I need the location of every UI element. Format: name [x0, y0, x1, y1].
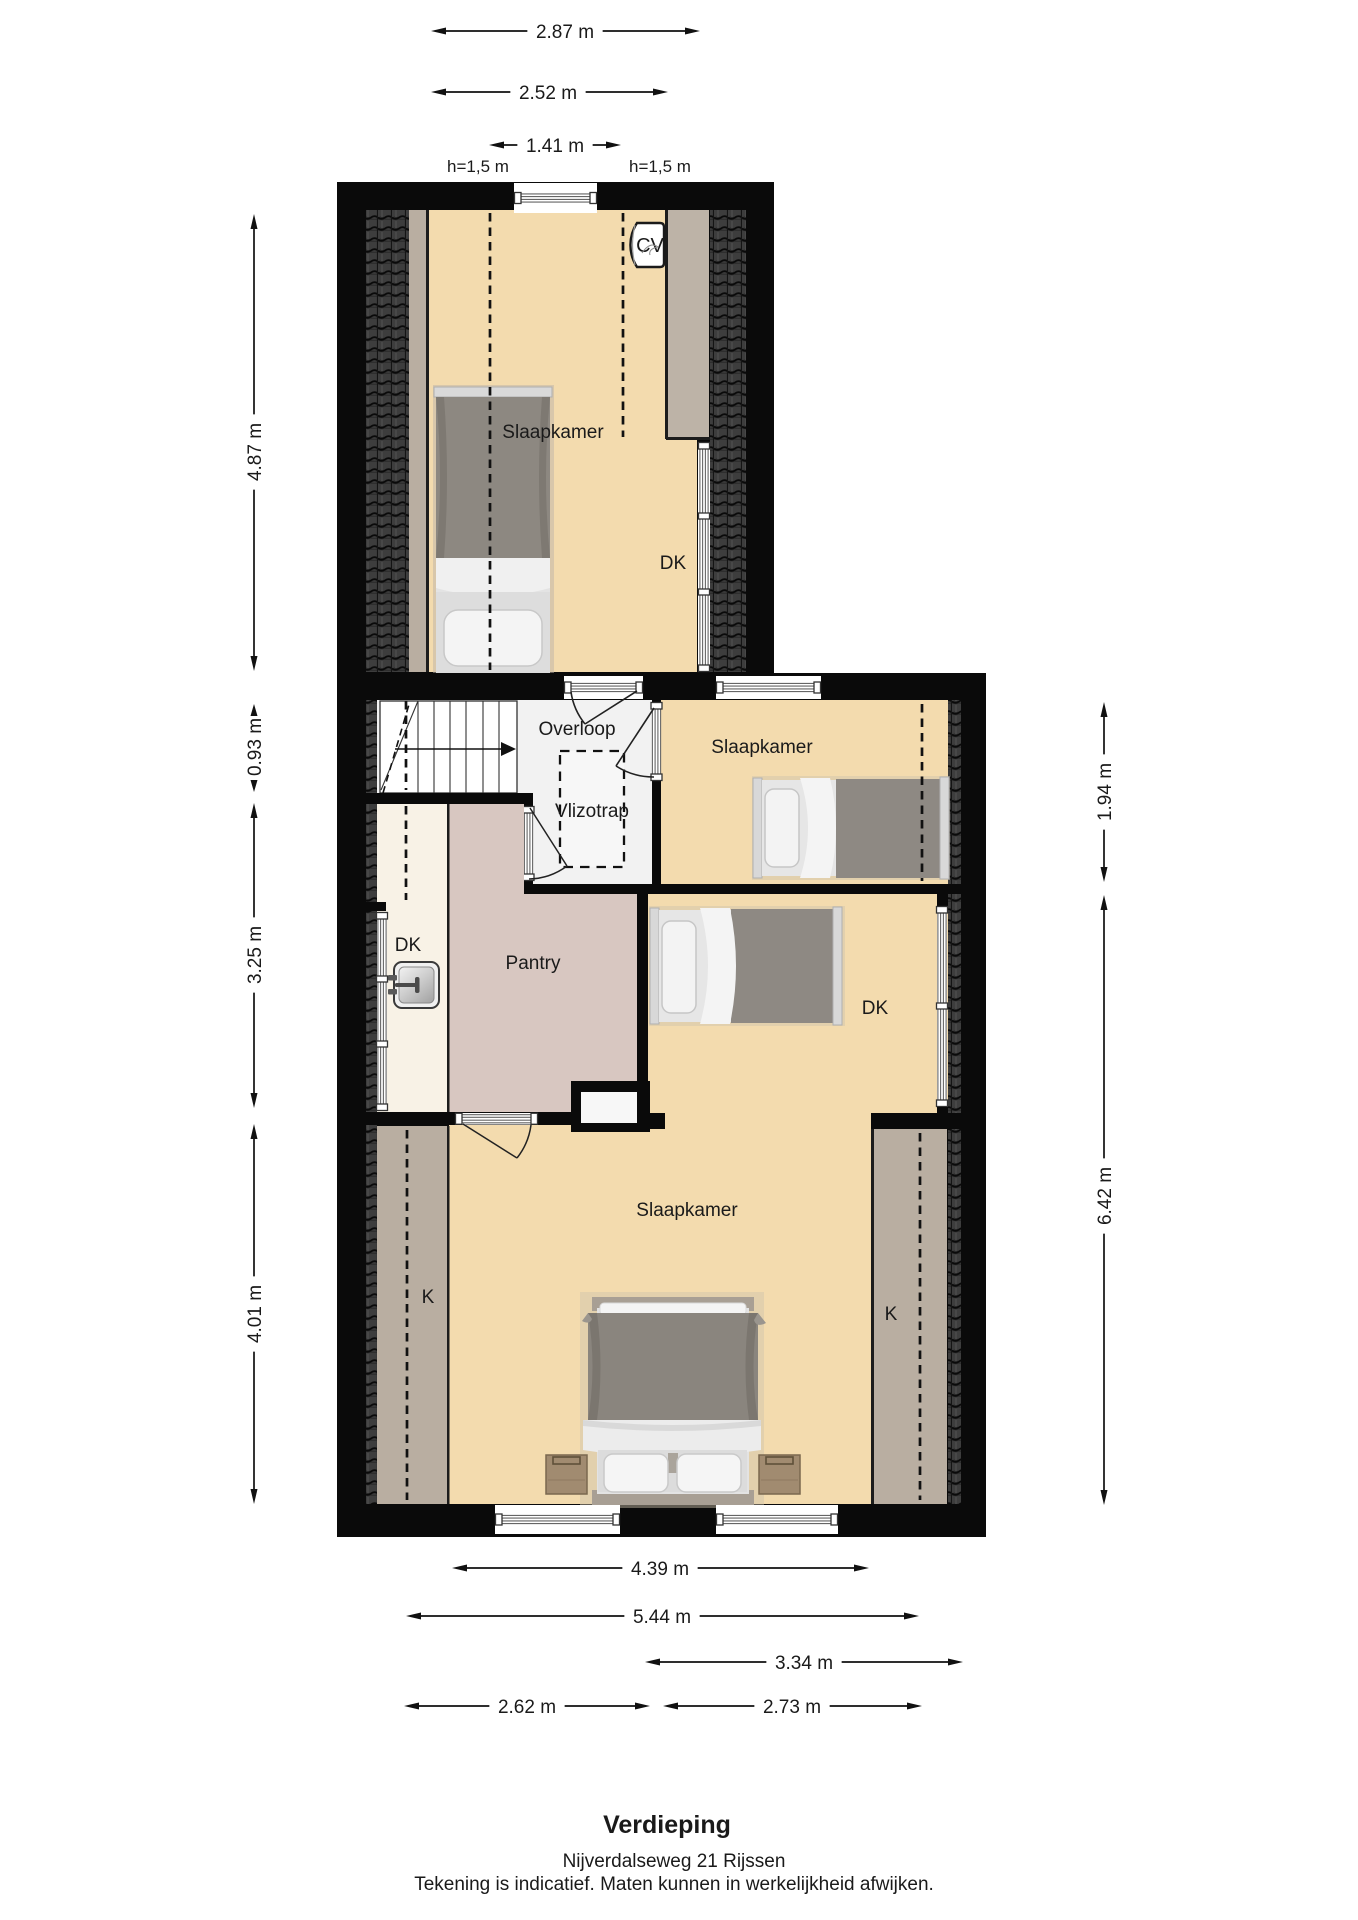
svg-text:h=1,5 m: h=1,5 m [447, 157, 509, 176]
svg-text:1.94 m: 1.94 m [1095, 763, 1116, 821]
svg-text:DK: DK [862, 998, 889, 1019]
svg-text:4.01 m: 4.01 m [245, 1285, 266, 1343]
svg-text:2.87 m: 2.87 m [536, 22, 594, 43]
svg-text:2.62 m: 2.62 m [498, 1697, 556, 1718]
svg-text:Pantry: Pantry [506, 953, 561, 974]
svg-text:5.44 m: 5.44 m [633, 1607, 691, 1628]
svg-text:Nijverdalseweg 21 Rijssen: Nijverdalseweg 21 Rijssen [563, 1851, 786, 1872]
svg-text:Overloop: Overloop [538, 719, 615, 740]
svg-text:3.25 m: 3.25 m [245, 926, 266, 984]
svg-text:Slaapkamer: Slaapkamer [711, 737, 813, 758]
svg-text:CV: CV [636, 235, 664, 257]
svg-text:Verdieping: Verdieping [603, 1811, 731, 1839]
svg-text:Slaapkamer: Slaapkamer [502, 422, 604, 443]
svg-text:0.93 m: 0.93 m [245, 718, 266, 776]
svg-text:1.41 m: 1.41 m [526, 136, 584, 157]
svg-text:K: K [885, 1304, 898, 1325]
svg-text:Slaapkamer: Slaapkamer [636, 1200, 738, 1221]
svg-text:h=1,5 m: h=1,5 m [629, 157, 691, 176]
svg-text:K: K [422, 1287, 435, 1308]
svg-text:DK: DK [660, 553, 687, 574]
svg-text:2.73 m: 2.73 m [763, 1697, 821, 1718]
svg-text:6.42 m: 6.42 m [1095, 1167, 1116, 1225]
svg-text:Vlizotrap: Vlizotrap [555, 801, 629, 822]
svg-text:3.34 m: 3.34 m [775, 1653, 833, 1674]
svg-text:2.52 m: 2.52 m [519, 83, 577, 104]
svg-text:4.39 m: 4.39 m [631, 1559, 689, 1580]
svg-text:Tekening is indicatief. Maten: Tekening is indicatief. Maten kunnen in … [414, 1874, 934, 1895]
svg-text:DK: DK [395, 935, 422, 956]
svg-text:4.87 m: 4.87 m [245, 423, 266, 481]
